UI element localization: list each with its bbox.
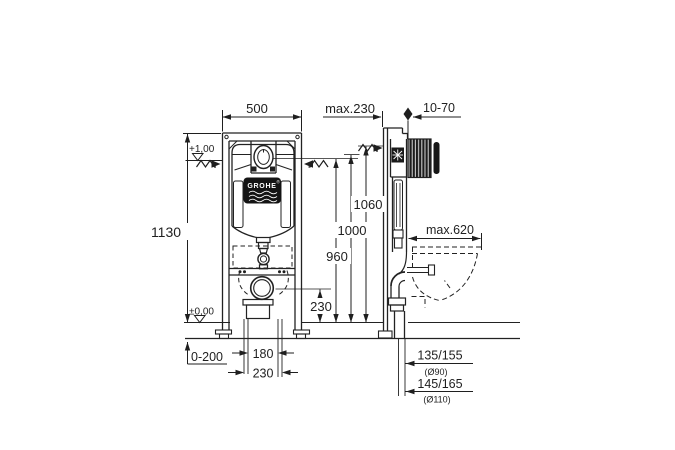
flush-pipe [257,238,271,269]
label-1000: 1000 [338,223,367,238]
bowl-inlet [407,265,435,275]
label-1060: 1060 [354,197,383,212]
frame-rails [223,133,302,330]
drawing-canvas: GROHE ® [0,0,675,450]
technical-drawing: GROHE ® [0,0,675,450]
flush-actuator-oval [254,146,273,169]
label-frame-height: 1130 [151,224,181,240]
actuator-knurl-cylinder [408,139,431,178]
wall-anchor-icon [359,144,383,152]
drain-elbow [243,277,273,319]
dim-1000 [344,155,360,323]
front-view: GROHE ® [216,133,310,377]
wall-anchor-icon [304,160,328,168]
wc-bowl-outline [412,247,482,308]
label-pipe-spacing: 180 [253,347,274,361]
grohe-logo-plate: GROHE ® [244,178,282,204]
label-outlet-dia-90: (Ø90) [424,367,447,377]
wall-anchor-icon [197,160,221,168]
label-level-plus-one: +1,00 [189,144,215,155]
label-outlet-110: 145/165 [417,377,462,391]
label-bowl-depth: max.620 [426,223,474,237]
wall-marker-diamond [404,108,413,121]
label-outlet-offset: 230 [253,367,274,381]
label-floor-buildup: 0-200 [191,350,223,364]
label-bracket-max: max.230 [325,101,375,116]
label-outlet-dia-110: (Ø110) [423,395,450,405]
label-outlet-90: 135/155 [417,349,462,363]
frame-feet [216,330,310,339]
label-drain-height: 230 [310,299,332,314]
grohe-brand-label: GROHE [247,183,276,190]
label-wall-thickness: 10-70 [423,101,455,115]
dim-960 [273,159,358,323]
label-960: 960 [326,249,348,264]
side-drain-bend [389,252,407,396]
floor-lines [184,323,520,339]
label-level-zero: ±0,00 [189,307,214,318]
flush-plate-disc [434,142,440,174]
label-top-width: 500 [246,101,268,116]
side-cistern [391,139,407,252]
